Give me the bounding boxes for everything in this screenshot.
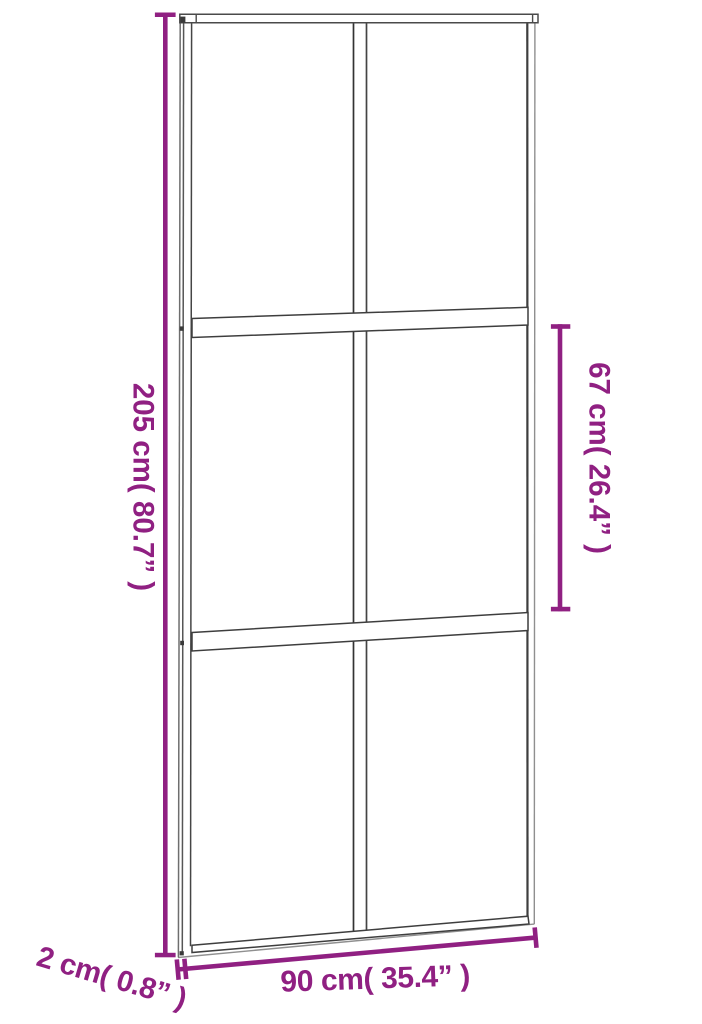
- svg-text:90 cm( 35.4” ): 90 cm( 35.4” ): [280, 959, 471, 999]
- svg-text:205 cm( 80.7” ): 205 cm( 80.7” ): [127, 383, 160, 591]
- svg-text:67 cm( 26.4” ): 67 cm( 26.4” ): [582, 362, 615, 554]
